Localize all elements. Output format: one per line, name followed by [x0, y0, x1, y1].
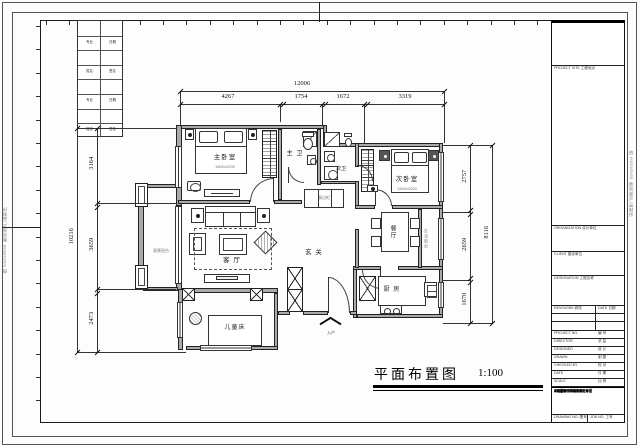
room-label-second-bedroom: 次卧室	[388, 177, 426, 184]
dining-chair	[410, 218, 420, 229]
graduation	[36, 143, 40, 144]
title-block-divider	[552, 313, 624, 314]
dimension-line	[77, 352, 186, 353]
room-label-living-room: 客 厅	[210, 258, 254, 265]
autodesk-watermark-right: 由 Autodesk 教育版产品制作	[628, 150, 634, 290]
tb-row-label: DIRECTOR	[554, 340, 573, 344]
signature-strip: 专业日期姓名签名专业日期姓名签名	[77, 20, 123, 137]
sign-strip-cell: 专业	[78, 41, 101, 44]
graduation	[210, 21, 211, 25]
balcony-post	[135, 265, 148, 289]
nightstand	[248, 129, 257, 140]
dim-top-seg: 1754	[281, 94, 321, 101]
graduation	[350, 21, 351, 25]
bed-size-label: 1800x2000	[207, 165, 243, 169]
graduation	[36, 330, 40, 331]
graduation	[280, 21, 281, 25]
dimension-line	[97, 289, 176, 290]
dim-left-seg: 2473	[89, 298, 96, 338]
tv	[216, 276, 238, 280]
drawing-sheet: 由 Autodesk 教育版产品制作 由 Autodesk 教育版产品制作 专业…	[0, 0, 640, 448]
title-underline-thin	[373, 390, 543, 391]
sign-strip-line	[78, 123, 122, 124]
toilet-bowl	[345, 138, 352, 147]
stove	[380, 305, 402, 314]
tb-row-label: DESIGNED	[554, 348, 573, 352]
tb-bottom-divider	[587, 414, 588, 423]
label-sideboard: 餐边柜	[312, 196, 336, 200]
tb-row-value: 比 例	[598, 380, 606, 384]
label-service-balcony: 生活阳台	[424, 222, 428, 256]
graduation	[163, 21, 164, 25]
graduation	[36, 26, 40, 27]
wall	[355, 205, 375, 209]
tb-row-label: CHECKED BY	[554, 364, 577, 368]
graduation	[36, 260, 40, 261]
wall	[176, 125, 182, 148]
pier	[287, 267, 303, 290]
sign-strip-line	[78, 36, 122, 37]
dim-left-seg: 3164	[89, 143, 96, 183]
tb-rev-divider	[595, 305, 596, 330]
window	[177, 302, 183, 338]
wall	[183, 288, 278, 293]
title-block: PROJECT SITE 工程地点 ORGANIZATION 设计单位 CLIE…	[551, 20, 625, 423]
dimension-line	[180, 91, 444, 92]
tb-rev-date: DATE 日期	[598, 307, 616, 311]
dim-top-overall: 12006	[272, 81, 332, 88]
sign-strip-line	[78, 79, 122, 80]
graduation	[374, 21, 375, 25]
wall	[274, 200, 302, 204]
dining-chair	[371, 236, 381, 247]
graduation	[491, 21, 492, 25]
pier	[287, 289, 303, 312]
graduation	[69, 21, 70, 25]
wall	[321, 181, 358, 184]
room-label-second-bath: 次卫	[332, 167, 350, 172]
sign-strip-line	[78, 109, 122, 110]
wall	[278, 129, 282, 200]
dimension-line	[97, 128, 98, 352]
side-table-plant	[187, 181, 201, 191]
graduation	[36, 237, 40, 238]
drawing-scale: 1:100	[478, 367, 503, 379]
graduation	[36, 49, 40, 50]
water-dispenser	[367, 185, 378, 192]
tb-job-no: JOB NO. 工号	[590, 416, 613, 420]
tb-row-value: 编 号	[598, 332, 606, 336]
dining-table	[381, 212, 409, 252]
room-label-master-bath: 主 卫	[282, 151, 308, 157]
dim-right-seg: 1670	[462, 279, 469, 319]
wall	[303, 311, 328, 315]
sofa	[205, 206, 256, 227]
door-leaf	[288, 167, 289, 183]
tb-drawing-no: DRAWING NO. 图号	[554, 416, 587, 420]
label-entry: 入户	[322, 331, 340, 335]
door-leaf	[328, 277, 329, 313]
nightstand	[379, 150, 390, 161]
sign-strip-cell: 姓名	[78, 70, 101, 73]
dimension-line	[97, 203, 176, 204]
window	[175, 206, 182, 284]
nightstand	[428, 150, 439, 161]
shower	[324, 132, 340, 147]
wall	[357, 314, 443, 318]
stool	[189, 312, 202, 325]
door-leaf	[273, 178, 274, 202]
bed-sheet-line	[196, 146, 246, 147]
wall	[355, 229, 359, 268]
center-mark-top	[319, 2, 320, 22]
wall	[178, 200, 250, 204]
tb-row-label: DRAWN	[554, 356, 567, 360]
graduation	[186, 21, 187, 25]
bed-sheet-line	[392, 165, 428, 166]
tb-row-value: 设 计	[598, 348, 606, 352]
window	[175, 146, 182, 188]
end-table	[191, 208, 204, 223]
graduation	[36, 166, 40, 167]
graduation	[46, 21, 47, 25]
room-label-hall: 玄 关	[294, 250, 334, 257]
pillow	[412, 152, 427, 163]
title-underline-thick	[373, 385, 543, 388]
dimension-line	[364, 104, 365, 143]
wall	[147, 184, 178, 188]
pier	[250, 288, 263, 301]
nightstand	[185, 129, 194, 140]
sign-strip-cell: 日期	[101, 41, 124, 44]
autodesk-watermark-left: 由 Autodesk 教育版产品制作	[2, 182, 8, 274]
dimension-line	[77, 128, 176, 129]
toilet-tank	[344, 133, 352, 137]
toilet-bowl	[303, 138, 313, 150]
room-label-children-bed: 儿童床	[214, 325, 256, 331]
dim-right-overall: 8116	[484, 212, 491, 252]
pillow	[224, 131, 243, 143]
dimension-line	[444, 91, 445, 143]
tb-row-label: SCALE	[554, 380, 566, 384]
tb-project-site: PROJECT SITE 工程地点	[554, 67, 595, 71]
graduation	[36, 377, 40, 378]
wall	[323, 143, 443, 147]
tb-row-value: 校 对	[598, 364, 606, 368]
dimension-line	[443, 212, 470, 213]
graduation	[303, 21, 304, 25]
kitchen-sink	[424, 282, 437, 297]
drawing-frame	[40, 20, 625, 423]
graduation	[36, 96, 40, 97]
sign-strip-cell: 专业	[78, 99, 101, 102]
tb-row-label: DATE	[554, 372, 563, 376]
dimension-line	[180, 91, 181, 125]
title-block-divider	[552, 321, 624, 322]
door-leaf	[357, 165, 373, 166]
graduation	[444, 21, 445, 25]
tb-designation: DESIGNATION 工程名称	[554, 277, 594, 281]
window	[438, 282, 444, 308]
dim-top-seg: 3319	[385, 94, 425, 101]
sign-strip-line	[78, 65, 122, 66]
pillow	[394, 152, 409, 163]
room-label-dining: 餐厅	[389, 218, 395, 246]
end-table	[257, 208, 270, 223]
dim-left-overall: 10216	[69, 216, 76, 256]
dining-chair	[371, 218, 381, 229]
graduation	[36, 190, 40, 191]
dresser	[204, 189, 240, 197]
wall	[355, 181, 359, 207]
tb-row-value: 总 监	[598, 340, 606, 344]
bath-sink	[324, 151, 335, 162]
sign-strip-line	[78, 50, 122, 51]
graduation	[140, 21, 141, 25]
graduation	[327, 21, 328, 25]
wall	[138, 206, 144, 266]
dim-top-seg: 1672	[323, 94, 363, 101]
bath-sink	[307, 155, 316, 165]
graduation	[257, 21, 258, 25]
wardrobe	[262, 130, 277, 178]
tb-row-value: 制 图	[598, 356, 606, 360]
dimension-line	[492, 145, 493, 324]
dining-chair	[410, 236, 420, 247]
sign-strip-cell: 日期	[101, 99, 124, 102]
tb-revisions: REVISIONS 修改	[554, 307, 582, 311]
label-view-balcony: 观景阳台	[146, 249, 176, 253]
tb-organization: ORGANIZATION 设计单位	[554, 227, 596, 231]
graduation	[36, 73, 40, 74]
dim-top-seg: 4267	[208, 94, 248, 101]
window	[438, 218, 444, 260]
graduation	[36, 283, 40, 284]
dim-right-seg: 2757	[462, 156, 469, 196]
sign-strip-line	[78, 94, 122, 95]
tb-client: CLIENT 建设单位	[554, 253, 582, 257]
graduation	[36, 354, 40, 355]
graduation	[467, 21, 468, 25]
dimension-line	[77, 128, 78, 352]
drawing-title: 平面布置图	[374, 364, 459, 384]
dim-right-seg: 2659	[462, 224, 469, 264]
graduation	[397, 21, 398, 25]
graduation	[233, 21, 234, 25]
wall	[355, 143, 359, 167]
room-label-master-bedroom: 主卧室	[207, 155, 243, 162]
room-label-kitchen: 厨 房	[378, 287, 406, 293]
graduation	[537, 21, 538, 25]
tb-note-line: All rights reserved.	[554, 389, 583, 394]
graduation	[36, 213, 40, 214]
graduation	[36, 400, 40, 401]
dimension-line	[180, 104, 444, 105]
bed-size-label: 1500x2000	[388, 187, 426, 191]
graduation	[420, 21, 421, 25]
graduation	[36, 307, 40, 308]
graduation	[36, 120, 40, 121]
graduation	[514, 21, 515, 25]
tb-row-label: PROJECT NO.	[554, 332, 578, 336]
wall	[317, 129, 321, 185]
dimension-line	[470, 145, 471, 324]
pier	[182, 288, 195, 301]
toilet-tank	[302, 132, 314, 137]
sign-strip-cell: 签名	[101, 70, 124, 73]
wall	[350, 311, 357, 315]
pillow	[199, 131, 218, 143]
tb-row-value: 日 期	[598, 372, 606, 376]
dim-left-seg: 3659	[89, 224, 96, 264]
wall	[274, 293, 278, 350]
